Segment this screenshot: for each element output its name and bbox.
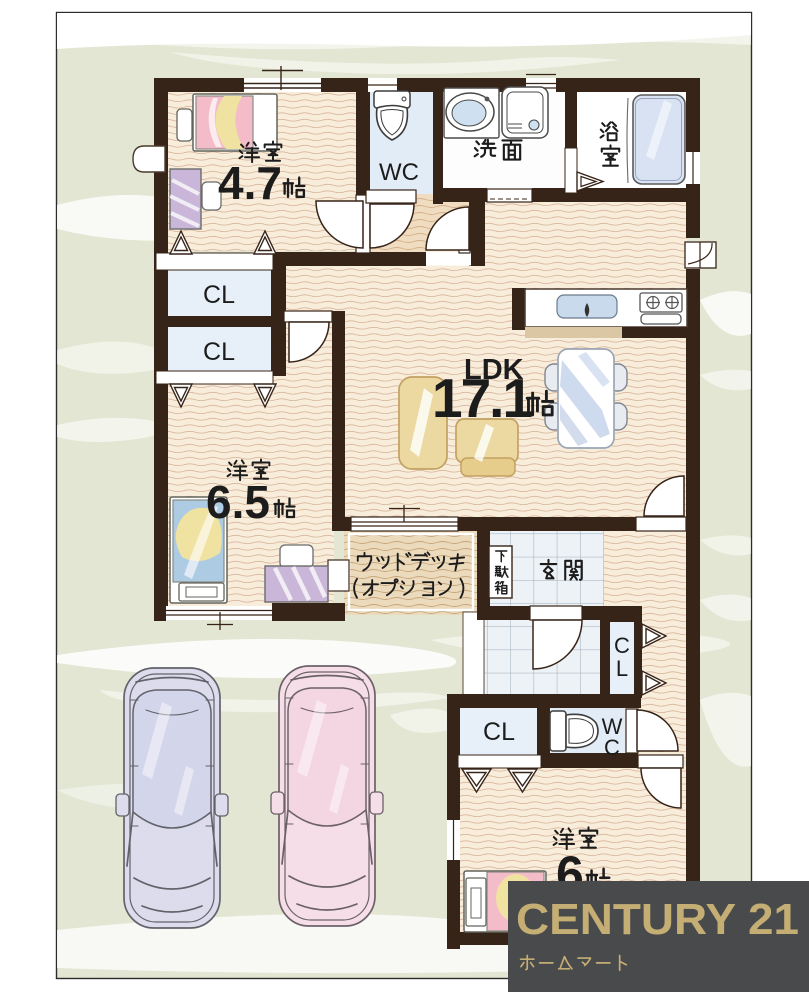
svg-text:6.5: 6.5: [206, 476, 270, 528]
svg-text:CENTURY 21: CENTURY 21: [516, 895, 799, 944]
svg-text:C: C: [614, 633, 630, 658]
svg-text:4.7: 4.7: [218, 157, 282, 209]
svg-text:L: L: [616, 656, 628, 681]
svg-text:C: C: [604, 735, 620, 760]
svg-text:17.1: 17.1: [432, 367, 532, 429]
svg-text:CL: CL: [483, 718, 515, 746]
svg-text:CL: CL: [203, 281, 235, 309]
svg-text:WC: WC: [379, 159, 419, 186]
svg-text:CL: CL: [203, 338, 235, 366]
